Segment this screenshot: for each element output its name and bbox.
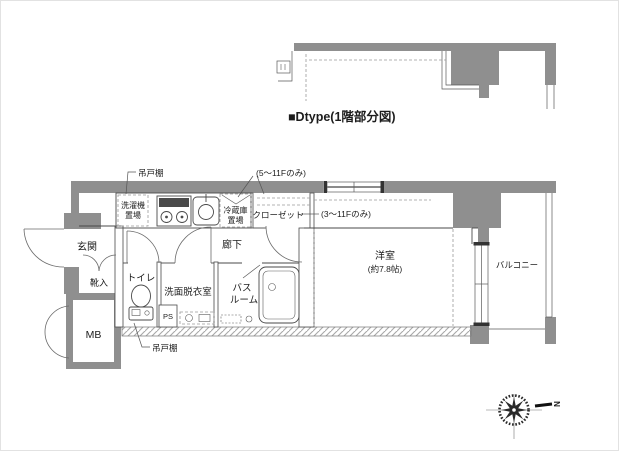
label-bath-2: ルーム — [230, 295, 258, 306]
label-genkan: 玄関 — [77, 240, 97, 253]
label-bath-1: バス — [232, 283, 251, 294]
label-toilet: トイレ — [127, 273, 156, 284]
label-washroom: 洗面脱衣室 — [164, 286, 212, 298]
north-label: N — [552, 401, 561, 407]
label-bedroom: 洋室 — [375, 249, 395, 262]
label-fridge-2: 置場 — [228, 215, 244, 225]
floorplan-svg: ■Dtype(1階部分図) — [1, 1, 619, 451]
label-balcony: バルコニー — [496, 260, 538, 270]
label-meter-box: MB — [86, 329, 102, 341]
label-pipe-space: PS — [163, 312, 173, 321]
hatched-party-wall — [122, 327, 471, 336]
label-hanging-cabinet-top: 吊戸棚 — [138, 168, 164, 178]
label-laundry-2: 置場 — [125, 210, 141, 220]
floorplan-page: ■Dtype(1階部分図) — [0, 0, 619, 451]
label-fridge-1: 冷蔵庫 — [224, 205, 248, 215]
north-arrow — [535, 404, 552, 406]
label-hallway: 廊下 — [222, 238, 242, 251]
diagram-title: ■Dtype(1階部分図) — [288, 109, 396, 124]
label-bedroom-size: (約7.8帖) — [368, 264, 403, 274]
label-closet: クローゼット — [252, 210, 303, 220]
label-laundry-1: 洗濯機 — [121, 200, 145, 210]
label-floors-5-11: (5〜11Fのみ) — [256, 168, 306, 178]
label-shoe-box: 靴入 — [90, 277, 108, 288]
label-hanging-cabinet-bottom: 吊戸棚 — [152, 343, 178, 353]
label-floors-3-11: (3〜11Fのみ) — [321, 209, 371, 219]
top-window — [323, 180, 384, 194]
